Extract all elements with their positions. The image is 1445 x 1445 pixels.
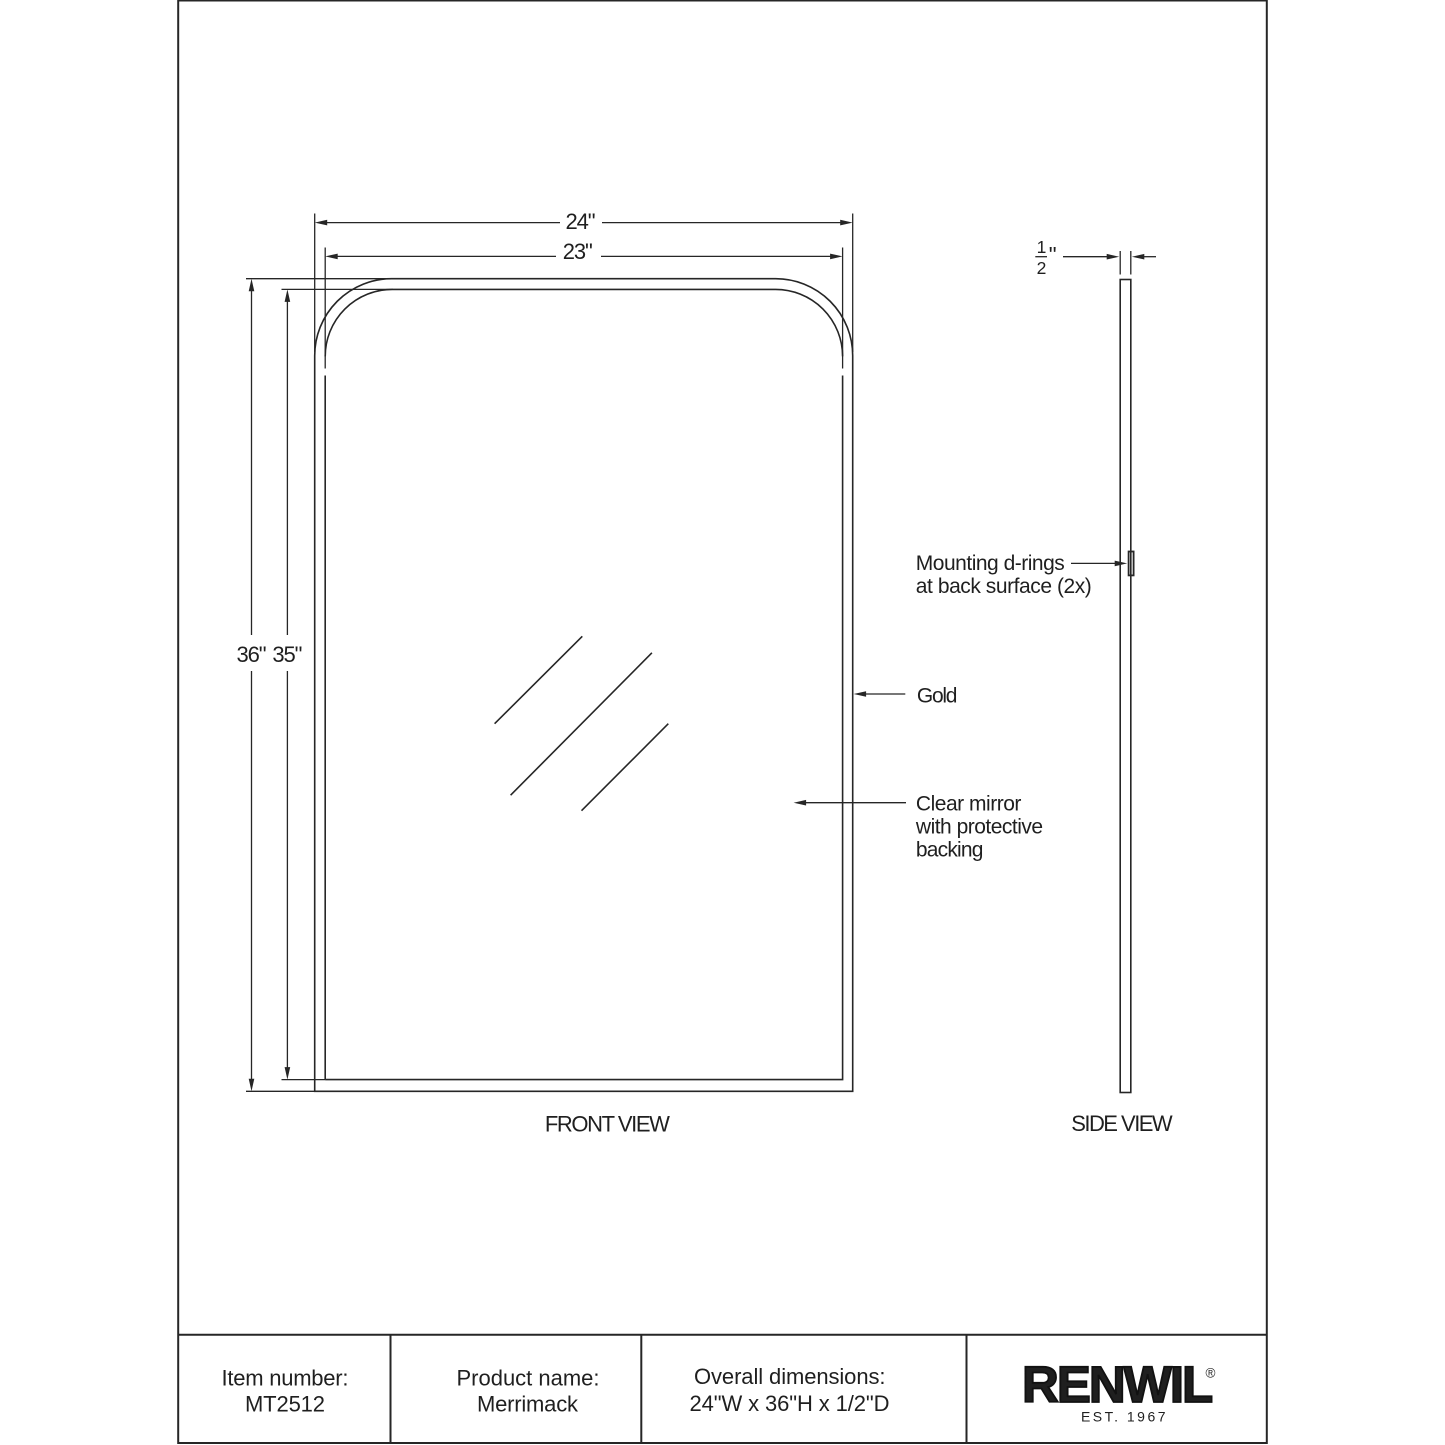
svg-text:2: 2 — [1037, 258, 1047, 278]
svg-text:RENWIL: RENWIL — [1022, 1356, 1212, 1413]
svg-text:Product name:: Product name: — [457, 1365, 600, 1390]
svg-text:Item number:: Item number: — [222, 1365, 349, 1390]
svg-text:24": 24" — [566, 209, 596, 234]
svg-text:MT2512: MT2512 — [245, 1391, 325, 1416]
svg-text:®: ® — [1206, 1366, 1216, 1381]
svg-text:24"W x 36"H x 1/2"D: 24"W x 36"H x 1/2"D — [690, 1391, 890, 1416]
svg-text:36": 36" — [237, 642, 267, 667]
svg-text:EST. 1967: EST. 1967 — [1081, 1408, 1168, 1424]
svg-text:Clear mirror: Clear mirror — [916, 792, 1022, 815]
svg-text:Overall dimensions:: Overall dimensions: — [694, 1364, 886, 1389]
svg-text:SIDE VIEW: SIDE VIEW — [1071, 1111, 1173, 1136]
svg-text:FRONT VIEW: FRONT VIEW — [545, 1112, 670, 1137]
svg-text:23": 23" — [563, 239, 593, 264]
svg-text:Mounting d-rings: Mounting d-rings — [916, 552, 1065, 575]
svg-text:Merrimack: Merrimack — [477, 1391, 579, 1416]
svg-text:": " — [1049, 243, 1057, 268]
svg-text:35": 35" — [272, 642, 302, 667]
svg-text:with protective: with protective — [915, 815, 1043, 838]
svg-text:at back surface (2x): at back surface (2x) — [916, 575, 1092, 598]
svg-text:Gold: Gold — [917, 684, 958, 707]
svg-text:backing: backing — [916, 838, 984, 861]
svg-text:1: 1 — [1037, 237, 1047, 257]
